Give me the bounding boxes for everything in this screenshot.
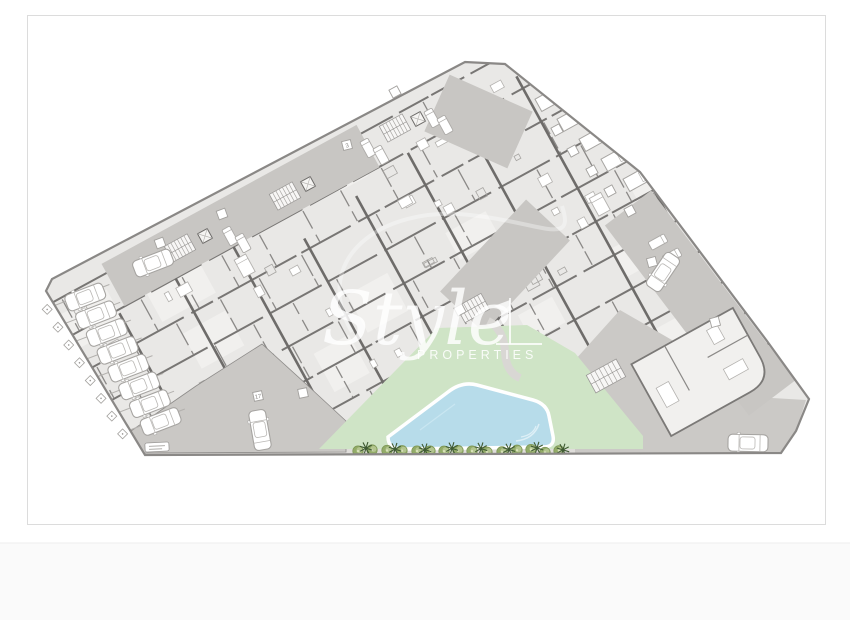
watermark-caps-text: PROPERTIES bbox=[417, 348, 537, 362]
footer-strip bbox=[0, 543, 850, 620]
entrance-sign bbox=[145, 442, 169, 452]
plan-screenshot: 317 Style PROPERTIES bbox=[0, 0, 850, 620]
unit-badge bbox=[709, 316, 720, 327]
unit-badge: 17 bbox=[253, 391, 264, 402]
unit-badge: 3 bbox=[342, 140, 353, 151]
unit-badge bbox=[646, 256, 657, 267]
page: 317 Style PROPERTIES bbox=[0, 0, 850, 620]
car-icon bbox=[728, 432, 768, 454]
unit-badge bbox=[298, 388, 309, 399]
